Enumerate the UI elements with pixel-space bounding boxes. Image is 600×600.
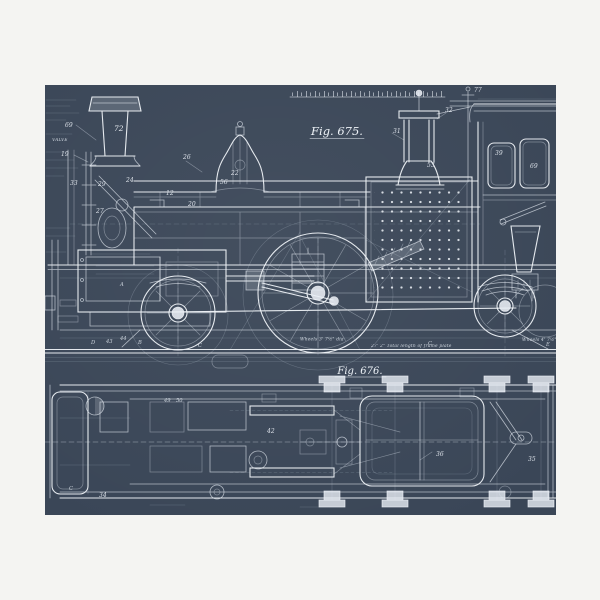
blueprint-photo: Fig. 675. Fig. 676. Wheels 3' 7½" dia27'… [0,0,600,600]
photo-sheen [45,85,556,515]
photo-matte: Fig. 675. Fig. 676. Wheels 3' 7½" dia27'… [0,0,600,600]
